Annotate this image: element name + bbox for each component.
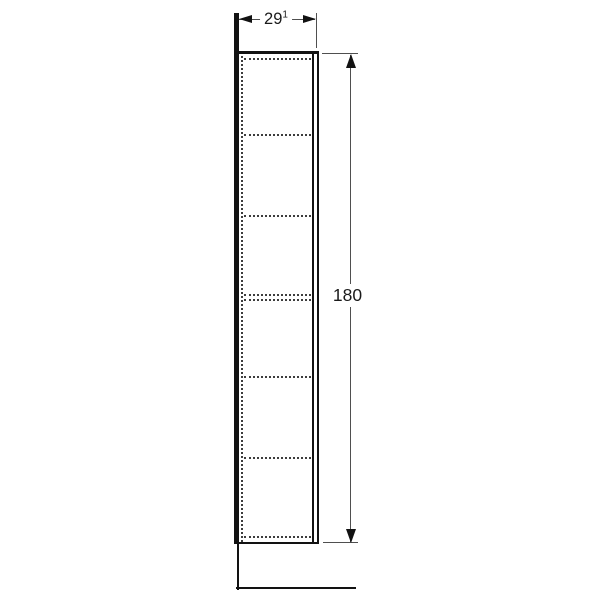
height-dimension-arrow-down-icon	[346, 529, 356, 543]
width-dimension-arrow-right-icon	[303, 15, 316, 23]
shelf-dashed-line	[244, 215, 311, 217]
shelf-dashed-line	[244, 294, 311, 296]
shelf-dashed-line	[244, 58, 311, 60]
base-outline-vertical-line	[237, 544, 239, 590]
width-dimension-extension-line	[316, 13, 317, 48]
cabinet-right-outer-panel-line	[317, 51, 319, 544]
width-dimension-label: 291	[260, 10, 292, 29]
cabinet-top-edge-line	[234, 51, 319, 54]
shelf-dashed-line	[244, 536, 311, 538]
cabinet-hidden-edge-dashed-line	[241, 56, 243, 542]
cabinet-left-edge-line	[234, 13, 239, 545]
floor-line	[236, 587, 356, 590]
width-dimension-arrow-left-icon	[239, 15, 252, 23]
height-dimension-label: 180	[329, 284, 366, 307]
shelf-dashed-line	[244, 457, 311, 459]
cabinet-bottom-edge-line	[234, 542, 319, 545]
width-value: 29	[264, 10, 282, 28]
technical-drawing-canvas: 291 180	[0, 0, 600, 600]
cabinet-right-inner-panel-line	[312, 53, 314, 542]
height-dimension-arrow-up-icon	[346, 54, 356, 68]
shelf-dashed-line	[244, 299, 311, 301]
shelf-dashed-line	[244, 134, 311, 136]
shelf-dashed-line	[244, 376, 311, 378]
width-footnote-superscript: 1	[282, 10, 288, 21]
